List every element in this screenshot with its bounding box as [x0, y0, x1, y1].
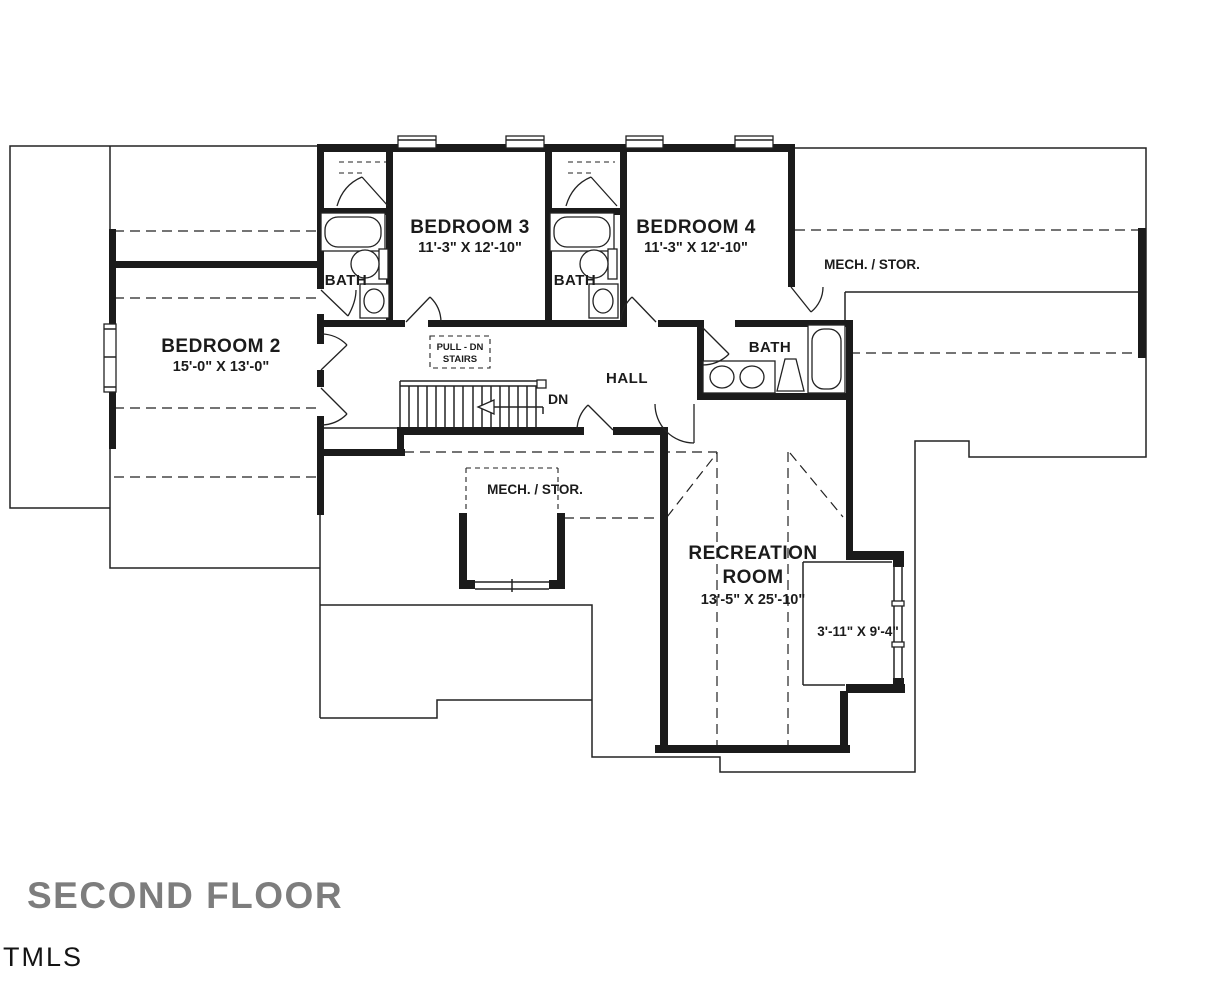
tub-symbol [808, 325, 845, 393]
window-bedroom4-left [626, 136, 663, 148]
bath-middle-label: BATH [554, 272, 597, 289]
bedroom3-dims: 11'-3" X 12'-10" [418, 240, 522, 256]
recreation-dims: 13'-5" X 25'-10" [701, 592, 805, 608]
window-bedroom3-right [506, 136, 544, 148]
pull-down-stairs-label-1: PULL - DN [437, 342, 484, 353]
tmls-watermark: TMLS [3, 942, 83, 972]
bedroom4-label: BEDROOM 4 [636, 217, 756, 238]
bedroom2-dims: 15'-0" X 13'-0" [173, 359, 269, 375]
door-mech-attic [791, 287, 823, 312]
floor-plan-page: BEDROOM 3 11'-3" X 12'-10" BEDROOM 4 11'… [0, 0, 1218, 1000]
page-title: SECOND FLOOR [27, 875, 343, 916]
sink-symbol [589, 284, 618, 318]
recreation-label-2: ROOM [722, 567, 783, 588]
stairs-dn-label: DN [548, 391, 568, 407]
bath-middle-fixtures [550, 213, 618, 318]
tub-symbol [321, 213, 385, 251]
bedroom4-dims: 11'-3" X 12'-10" [644, 240, 748, 256]
window-mech-closet [475, 579, 549, 592]
tub-symbol [550, 213, 614, 251]
pull-down-stairs-label-2: STAIRS [443, 354, 477, 365]
recreation-label-1: RECREATION [688, 543, 817, 564]
bedroom2-label: BEDROOM 2 [161, 336, 281, 357]
floor-plan-drawing: BEDROOM 3 11'-3" X 12'-10" BEDROOM 4 11'… [0, 0, 1218, 1000]
door-closet-left [337, 177, 388, 206]
door-hall-south [577, 405, 613, 430]
door-bath-hall [702, 327, 729, 365]
mech-stor-attic-label: MECH. / STOR. [824, 257, 920, 272]
toilet-symbol [777, 359, 804, 391]
window-bedroom2 [104, 324, 116, 392]
bath-hall-fixtures [703, 325, 845, 393]
hall-label: HALL [606, 370, 648, 387]
window-bedroom4-right [735, 136, 773, 148]
alcove-dims: 3'-11" X 9'-4" [817, 624, 899, 639]
door-stair-closet [321, 388, 347, 425]
door-bedroom2-lower [321, 334, 347, 370]
bath-left-label: BATH [325, 272, 368, 289]
door-bedroom3 [406, 297, 441, 322]
door-closet-middle [566, 177, 617, 206]
bedroom3-label: BEDROOM 3 [410, 217, 530, 238]
double-vanity-symbol [703, 361, 775, 393]
sink-symbol [360, 284, 389, 318]
window-bedroom3-left [398, 136, 436, 148]
door-bedroom2-upper [321, 290, 356, 316]
stairs-down-arrow [478, 400, 543, 414]
walls [109, 144, 1146, 753]
bath-left-fixtures [321, 213, 389, 318]
bath-hall-label: BATH [749, 339, 792, 356]
mech-stor-closet-label: MECH. / STOR. [487, 482, 583, 497]
